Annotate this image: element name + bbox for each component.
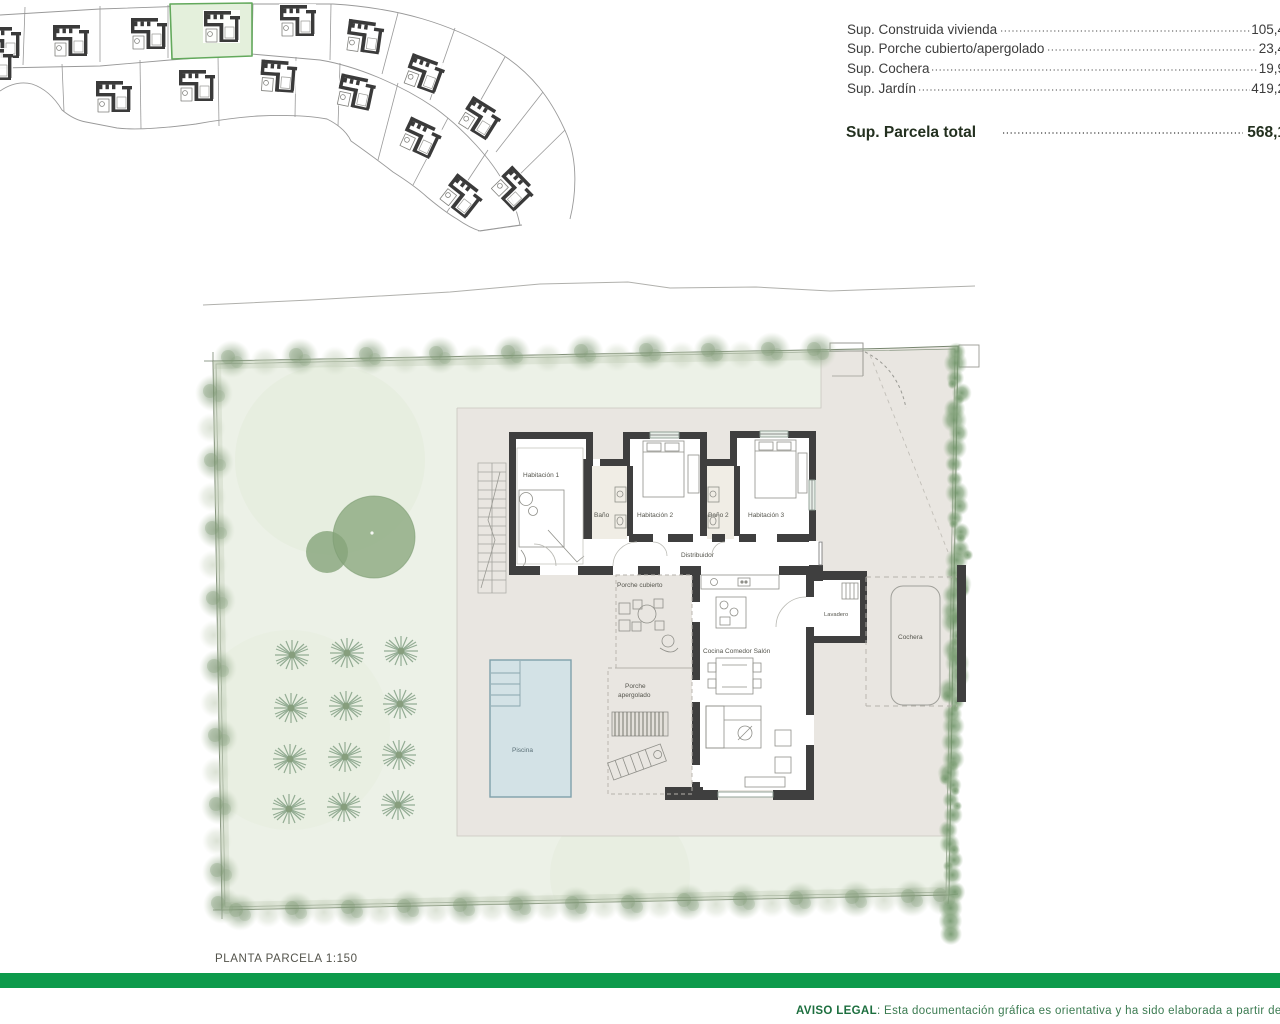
svg-text:Baño: Baño bbox=[594, 512, 610, 519]
svg-text:419,2: 419,2 bbox=[1251, 81, 1280, 96]
svg-text:Sup. Construida vivienda: Sup. Construida vivienda bbox=[847, 22, 998, 37]
svg-text:Cochera: Cochera bbox=[898, 634, 923, 641]
svg-text:23,4: 23,4 bbox=[1259, 41, 1280, 56]
svg-text:Piscina: Piscina bbox=[512, 747, 533, 754]
svg-text:Habitación 1: Habitación 1 bbox=[523, 472, 560, 479]
svg-text:Habitación 3: Habitación 3 bbox=[748, 512, 785, 519]
svg-text:568,1: 568,1 bbox=[1247, 124, 1280, 141]
svg-text:PLANTA PARCELA 1:150: PLANTA PARCELA 1:150 bbox=[215, 953, 358, 965]
svg-text:Cocina Comedor Salón: Cocina Comedor Salón bbox=[703, 648, 771, 655]
svg-text:apergolado: apergolado bbox=[618, 692, 651, 699]
svg-text:AVISO LEGAL: Esta documentació: AVISO LEGAL: Esta documentación gráfica … bbox=[796, 1005, 1280, 1017]
svg-text:Distribuidor: Distribuidor bbox=[681, 552, 715, 559]
svg-text:Sup. Porche cubierto/apergolad: Sup. Porche cubierto/apergolado bbox=[847, 41, 1044, 56]
svg-text:Porche: Porche bbox=[625, 683, 646, 690]
svg-text:19,9: 19,9 bbox=[1259, 61, 1280, 76]
svg-text:Sup. Cochera: Sup. Cochera bbox=[847, 61, 930, 76]
svg-text:Porche cubierto: Porche cubierto bbox=[617, 582, 663, 589]
svg-text:105,4: 105,4 bbox=[1251, 22, 1280, 37]
svg-text:Sup. Jardín: Sup. Jardín bbox=[847, 81, 916, 96]
svg-text:Lavadero: Lavadero bbox=[824, 612, 848, 618]
svg-text:Sup. Parcela total: Sup. Parcela total bbox=[846, 124, 976, 141]
svg-text:Habitación 2: Habitación 2 bbox=[637, 512, 674, 519]
